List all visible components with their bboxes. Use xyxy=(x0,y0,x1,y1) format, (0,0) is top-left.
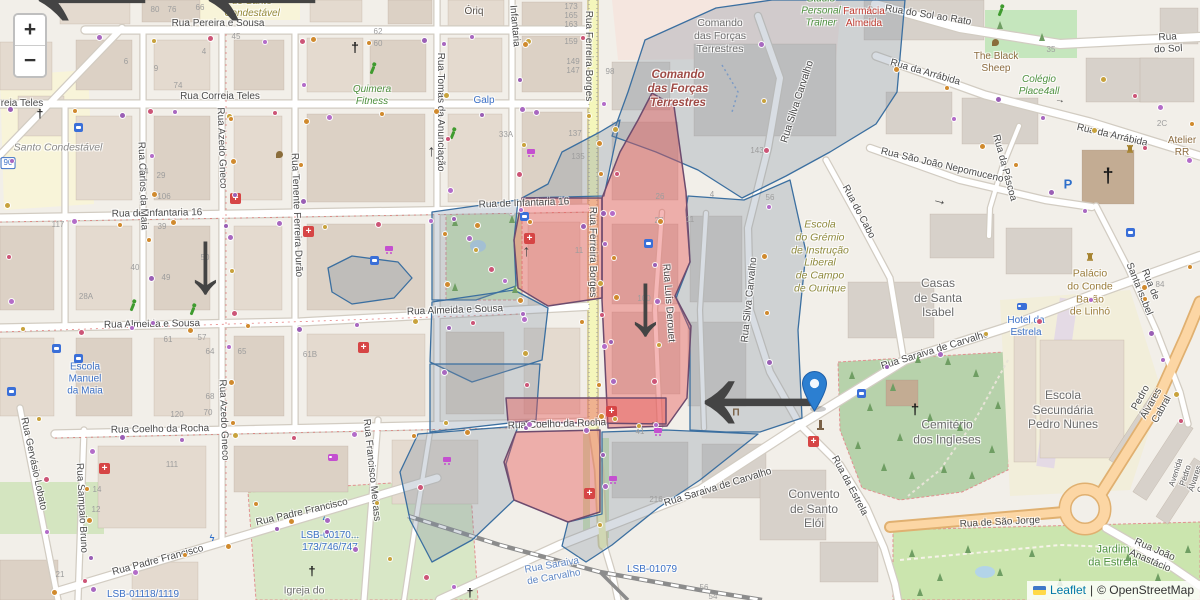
poi-dot xyxy=(91,587,96,592)
poi-dot xyxy=(518,298,523,303)
poi-dot xyxy=(292,436,296,440)
poi-dot xyxy=(474,248,478,252)
poi-dot xyxy=(447,326,451,330)
tree-icon xyxy=(452,283,458,291)
bus-stop-icon xyxy=(1126,228,1135,237)
poi-dot xyxy=(297,327,302,332)
map-label: Rua da Arrábida xyxy=(889,57,962,89)
poi-dot xyxy=(226,544,231,549)
poi-dot xyxy=(147,238,151,242)
tree-icon xyxy=(1155,573,1161,581)
bus-stop-icon xyxy=(857,389,866,398)
poi-dot xyxy=(1143,297,1147,301)
tree-icon xyxy=(881,463,887,471)
poi-dot xyxy=(173,110,177,114)
house-number: 173 xyxy=(564,2,577,12)
poi-dot xyxy=(72,219,77,224)
map-label: Escola do Grémio de Instrução Liberal de… xyxy=(791,219,849,296)
poi-dot xyxy=(87,518,92,523)
house-number: 106 xyxy=(157,192,170,202)
pharmacy-icon xyxy=(584,488,595,499)
map-label: Santo Condestável xyxy=(14,142,103,155)
cart-icon xyxy=(654,428,662,433)
poi-dot xyxy=(652,379,657,384)
church-icon: † xyxy=(351,39,359,55)
bus-stop-icon xyxy=(74,354,83,363)
poi-dot xyxy=(938,352,943,357)
poi-dot xyxy=(133,570,138,575)
poi-dot xyxy=(603,242,607,246)
house-number: 2C xyxy=(1157,119,1167,129)
map-label: Rua Saraiva de Carvalho xyxy=(663,466,773,510)
poi-dot xyxy=(355,323,359,327)
tree-icon xyxy=(867,403,873,411)
cart-icon xyxy=(609,476,617,481)
zoom-out-button[interactable]: − xyxy=(15,46,45,76)
poi-dot xyxy=(599,172,603,176)
map-label: Rua Saraiva de Carvalho xyxy=(524,555,582,589)
arrow-icon: → xyxy=(931,190,950,210)
map-label: The Black Sheep xyxy=(974,51,1018,75)
tree-icon xyxy=(1029,549,1035,557)
poi-dot xyxy=(612,256,616,260)
house-number: 54 xyxy=(709,592,718,600)
house-number: 98 xyxy=(606,67,615,77)
house-number: 61B xyxy=(303,350,317,360)
poi-dot xyxy=(1037,319,1042,324)
map-label: Comando das Forças Terrestres xyxy=(648,68,709,110)
poi-dot xyxy=(302,83,306,87)
map-label: Comando das Forças Terrestres xyxy=(694,17,746,55)
house-number: 9 xyxy=(154,64,158,74)
map-label: Rua do Cabo xyxy=(839,183,877,241)
poi-dot xyxy=(1089,298,1093,302)
poi-dot xyxy=(325,530,329,534)
house-number: 84 xyxy=(1156,280,1165,290)
poi-dot xyxy=(1143,146,1147,150)
poi-dot xyxy=(254,502,258,506)
poi-dot xyxy=(517,172,522,177)
arrow-icon: → xyxy=(516,244,534,260)
poi-dot xyxy=(522,143,526,147)
poi-dot xyxy=(521,312,525,316)
map-label: Rua Silva Carvalho xyxy=(739,257,760,343)
poi-dot xyxy=(598,523,602,527)
poi-dot xyxy=(1041,116,1045,120)
bus-stop-icon xyxy=(644,239,653,248)
poi-dot xyxy=(467,236,472,241)
poi-dot xyxy=(301,199,306,204)
poi-dot xyxy=(767,360,772,365)
poi-dot xyxy=(52,590,57,595)
poi-dot xyxy=(1142,285,1147,290)
poi-dot xyxy=(1049,190,1054,195)
poi-dot xyxy=(120,113,125,118)
poi-dot xyxy=(8,107,13,112)
poi-dot xyxy=(300,39,305,44)
poi-dot xyxy=(602,102,606,106)
poi-dot xyxy=(765,311,769,315)
poi-dot xyxy=(412,434,416,438)
poi-dot xyxy=(452,217,456,221)
poi-dot xyxy=(894,67,899,72)
poi-dot xyxy=(1187,158,1192,163)
poi-dot xyxy=(150,154,154,158)
tree-icon xyxy=(937,573,943,581)
runner-icon xyxy=(370,66,375,74)
map-label: Rua Ferreira Borges xyxy=(582,11,594,102)
poi-dot xyxy=(442,42,446,46)
poi-dot xyxy=(534,110,539,115)
poi-dot xyxy=(7,255,11,259)
tree-icon xyxy=(849,371,855,379)
poi-dot xyxy=(527,422,532,427)
poi-dot xyxy=(518,78,522,82)
map-label: Rua de Infantaria 16 xyxy=(112,207,203,221)
map-marker[interactable] xyxy=(802,371,827,412)
poi-dot xyxy=(480,113,484,117)
poi-dot xyxy=(232,311,237,316)
tree-icon xyxy=(915,355,921,363)
poi-dot xyxy=(327,115,332,120)
poi-dot xyxy=(275,527,279,531)
bed-icon xyxy=(328,454,338,461)
poi-dot xyxy=(188,328,193,333)
poi-dot xyxy=(85,487,89,491)
house-number: 50 xyxy=(201,253,210,263)
poi-dot xyxy=(208,36,213,41)
poi-dot xyxy=(227,345,231,349)
poi-dot xyxy=(231,159,236,164)
poi-dot xyxy=(655,299,660,304)
house-number: 24 xyxy=(140,167,149,177)
map-label: Rua Padre Francisco xyxy=(255,496,349,529)
poi-dot xyxy=(273,111,277,115)
map-label: Rua Carlos da Maia xyxy=(134,142,149,231)
poi-dot xyxy=(443,232,447,236)
poi-dot xyxy=(637,424,641,428)
poi-dot xyxy=(304,119,309,124)
ev-icon: ϟ xyxy=(323,515,328,525)
poi-dot xyxy=(44,477,49,482)
map-label: Rua São João Nepomuceno xyxy=(879,146,1004,186)
poi-dot xyxy=(289,519,294,524)
house-number: 56 xyxy=(700,583,709,593)
map-label: LSB-01079 xyxy=(627,564,677,576)
map-label: Igreja do xyxy=(284,585,325,598)
house-number: 56 xyxy=(766,193,775,203)
poi-dot xyxy=(418,485,423,490)
poi-dot xyxy=(597,383,601,387)
map-label: Rua João Anastácio xyxy=(1125,535,1179,576)
attribution-separator: | xyxy=(1090,583,1093,597)
house-number: 163 xyxy=(564,20,577,30)
poi-dot xyxy=(97,35,102,40)
map-label: reia Teles xyxy=(1,98,44,110)
house-number: 11 xyxy=(575,246,583,256)
runner-icon xyxy=(130,303,135,311)
poi-dot xyxy=(388,557,392,561)
poi-dot xyxy=(475,223,480,228)
poi-dot xyxy=(79,330,84,335)
poi-dot xyxy=(452,585,456,589)
poi-dot xyxy=(367,41,371,45)
poi-dot xyxy=(762,254,767,259)
house-number: 68 xyxy=(206,392,215,402)
map-label: Óriq xyxy=(465,6,484,18)
church-icon: † xyxy=(467,586,474,600)
map-label: LSB-01118/1119 xyxy=(107,589,179,600)
map-label: Rua Almeida e Sousa xyxy=(104,318,200,332)
arrow-icon: → xyxy=(172,0,352,135)
map-label: de Santo Condestável xyxy=(224,0,280,20)
poi-dot xyxy=(522,317,527,322)
poi-dot xyxy=(183,553,187,557)
poi-dot xyxy=(120,435,125,440)
house-number: 49 xyxy=(162,273,171,283)
house-number: 159 xyxy=(564,37,577,47)
castle-icon: ♜ xyxy=(1086,253,1095,264)
map-label: Rua Correia Teles xyxy=(180,91,260,103)
poi-dot xyxy=(1133,94,1137,98)
arrow-icon: → xyxy=(169,223,272,313)
poi-dot xyxy=(600,313,604,317)
castle-icon: ♜ xyxy=(1126,145,1135,156)
map-label: 90 xyxy=(1,157,16,169)
map-label: Galp xyxy=(473,95,494,107)
poi-dot xyxy=(45,530,49,534)
poi-dot xyxy=(171,220,176,225)
map-label: Rua Almeida e Sousa xyxy=(407,303,504,319)
poi-dot xyxy=(5,203,10,208)
poi-dot xyxy=(90,449,95,454)
church-icon: † xyxy=(1102,166,1113,189)
poi-dot xyxy=(180,438,184,442)
poi-dot xyxy=(9,299,14,304)
house-number: 60 xyxy=(374,39,383,49)
house-number: 80 xyxy=(151,5,160,15)
arrow-icon: → xyxy=(1054,94,1066,107)
map-label: Rua do Sol ao Rato xyxy=(884,3,972,29)
house-number: 4 xyxy=(202,47,206,57)
poi-dot xyxy=(151,321,155,325)
poi-dot xyxy=(224,224,228,228)
attribution-bar: Leaflet | © OpenStreetMap xyxy=(1027,581,1200,600)
poi-dot xyxy=(434,109,439,114)
poi-dot xyxy=(323,225,327,229)
poi-dot xyxy=(613,417,617,421)
poi-dot xyxy=(1179,419,1183,423)
poi-dot xyxy=(601,211,606,216)
poi-dot xyxy=(446,137,450,141)
poi-dot xyxy=(277,221,282,226)
poi-dot xyxy=(524,426,528,430)
poi-dot xyxy=(1101,77,1106,82)
house-number: 28A xyxy=(79,292,93,302)
poi-dot xyxy=(352,432,357,437)
poi-dot xyxy=(523,351,528,356)
map-label: Rua Pereira e Sousa xyxy=(172,18,265,30)
house-number: 137 xyxy=(568,129,581,139)
leaflet-map[interactable]: Rua Pereira e SousaRua Correia Telesreia… xyxy=(0,0,1200,600)
map-label: Rua Ferreira Borges xyxy=(586,207,598,298)
house-number: 35 xyxy=(1047,45,1056,55)
house-number: 62 xyxy=(374,27,383,37)
bus-stop-icon xyxy=(370,256,379,265)
poi-dot xyxy=(489,267,494,272)
poi-dot xyxy=(230,269,234,273)
map-label: LSB-00170... 173/746/747 xyxy=(301,530,359,554)
poi-dot xyxy=(1092,128,1097,133)
house-number: 6 xyxy=(124,57,128,67)
poi-dot xyxy=(598,281,603,286)
tree-icon xyxy=(452,218,458,226)
poi-dot xyxy=(148,109,153,114)
map-label: Rua da Páscoa xyxy=(989,133,1018,202)
poi-dot xyxy=(246,324,250,328)
poi-dot xyxy=(1188,265,1192,269)
house-number: 147 xyxy=(566,66,579,76)
poi-dot xyxy=(613,127,618,132)
poi-dot xyxy=(83,579,87,583)
poi-dot xyxy=(10,159,14,163)
runner-icon xyxy=(998,8,1003,16)
map-label: Convento de Santo Elói xyxy=(788,487,839,531)
poi-dot xyxy=(429,219,433,223)
map-label: Cemitério dos Ingleses xyxy=(913,417,980,446)
map-label: Jardim da Estrela xyxy=(1088,544,1138,571)
church-icon: † xyxy=(911,402,919,419)
map-label: Avenida Pedro Álvares Cabral xyxy=(1167,457,1200,496)
tree-icon xyxy=(997,568,1003,576)
poi-dot xyxy=(767,205,771,209)
map-label: Rua Padre Francisco xyxy=(111,543,205,579)
arrow-icon: → xyxy=(668,331,848,538)
map-label: Escola Secundária Pedro Nunes xyxy=(1028,388,1098,432)
pharmacy-icon xyxy=(606,406,617,417)
house-number: 165 xyxy=(564,11,577,21)
bus-stop-icon xyxy=(520,212,529,221)
map-label: Rua Saraiva de Carvalho xyxy=(880,329,990,373)
leaflet-link[interactable]: Leaflet xyxy=(1050,583,1086,597)
poi-dot xyxy=(584,428,589,433)
poi-dot xyxy=(465,430,470,435)
map-label: Rua Silva Carvalho xyxy=(779,59,817,144)
bus-stop-icon xyxy=(7,387,16,396)
poi-dot xyxy=(470,35,474,39)
poi-dot xyxy=(885,365,889,369)
poi-dot xyxy=(654,423,658,427)
parking-icon: P xyxy=(1064,177,1073,192)
map-label: Rua Tenente Ferreira Durão xyxy=(288,153,305,278)
poi-dot xyxy=(599,414,604,419)
annotation-layer: Rua Pereira e SousaRua Correia Telesreia… xyxy=(0,0,1200,600)
map-label: Rua Gervásio Lobato xyxy=(17,417,49,512)
house-number: 120 xyxy=(170,410,183,420)
poi-dot xyxy=(1161,358,1165,362)
poi-dot xyxy=(444,93,449,98)
map-label: Quimera Fitness xyxy=(353,84,391,108)
poi-dot xyxy=(615,172,619,176)
poi-dot xyxy=(228,235,233,240)
poi-dot xyxy=(375,501,379,505)
map-label: Atelier RR xyxy=(1168,135,1196,159)
poi-dot xyxy=(581,36,585,40)
poi-dot xyxy=(581,224,586,229)
poi-dot xyxy=(1174,392,1179,397)
map-label: Hotel da Estrela xyxy=(1007,315,1044,339)
tree-icon xyxy=(1185,545,1191,553)
house-number: 65 xyxy=(238,347,247,357)
house-number: 33A xyxy=(499,130,513,140)
house-number: 26 xyxy=(656,192,665,202)
poi-dot xyxy=(448,188,453,193)
map-label: Farmácia Almeida xyxy=(843,6,885,30)
map-label: Rua Azedo Gneco xyxy=(215,379,230,461)
house-number: 66 xyxy=(196,3,205,13)
poi-dot xyxy=(657,343,661,347)
poi-dot xyxy=(609,340,613,344)
zoom-in-button[interactable]: + xyxy=(15,15,45,46)
poi-dot xyxy=(89,556,93,560)
map-label: Palácio do Conde Barão de Linhó xyxy=(1067,267,1113,318)
tree-icon xyxy=(969,471,975,479)
palette-icon xyxy=(992,39,999,46)
poi-dot xyxy=(263,40,267,44)
map-label: Rua Sampaio Bruno xyxy=(73,463,90,554)
poi-dot xyxy=(503,279,507,283)
church-icon: † xyxy=(308,564,315,579)
poi-dot xyxy=(444,421,448,425)
poi-dot xyxy=(130,326,134,330)
tree-icon xyxy=(909,471,915,479)
poi-dot xyxy=(229,380,234,385)
pharmacy-icon xyxy=(358,342,369,353)
tree-icon xyxy=(989,445,995,453)
runner-icon xyxy=(450,131,455,139)
tree-icon xyxy=(945,357,951,365)
tree-icon xyxy=(965,545,971,553)
house-number: 40 xyxy=(131,263,140,273)
poi-dot xyxy=(471,321,475,325)
tree-icon xyxy=(909,549,915,557)
tree-icon xyxy=(512,285,518,293)
poi-dot xyxy=(523,42,528,47)
map-label: Rua Coelho da Rocha xyxy=(508,417,607,433)
map-label: Rua Francisco Metrass xyxy=(360,418,383,522)
poi-dot xyxy=(233,433,238,438)
house-number: 27 xyxy=(655,216,664,226)
pharmacy-icon xyxy=(303,226,314,237)
house-number: 57 xyxy=(198,333,207,343)
house-number: 100 xyxy=(637,294,650,304)
zoom-control: + − xyxy=(13,13,47,78)
poi-dot xyxy=(311,37,316,42)
poi-dot xyxy=(984,332,988,336)
poi-dot xyxy=(764,148,769,153)
house-number: 61 xyxy=(164,335,173,345)
marker-icon xyxy=(802,371,827,412)
house-number: 70 xyxy=(204,408,213,418)
poi-dot xyxy=(1083,209,1087,213)
poi-dot xyxy=(353,547,358,552)
poi-dot xyxy=(945,86,949,90)
poi-dot xyxy=(580,320,584,324)
tree-icon xyxy=(855,441,861,449)
poi-dot xyxy=(445,282,450,287)
cart-icon xyxy=(443,457,451,462)
cart-icon xyxy=(385,246,393,251)
